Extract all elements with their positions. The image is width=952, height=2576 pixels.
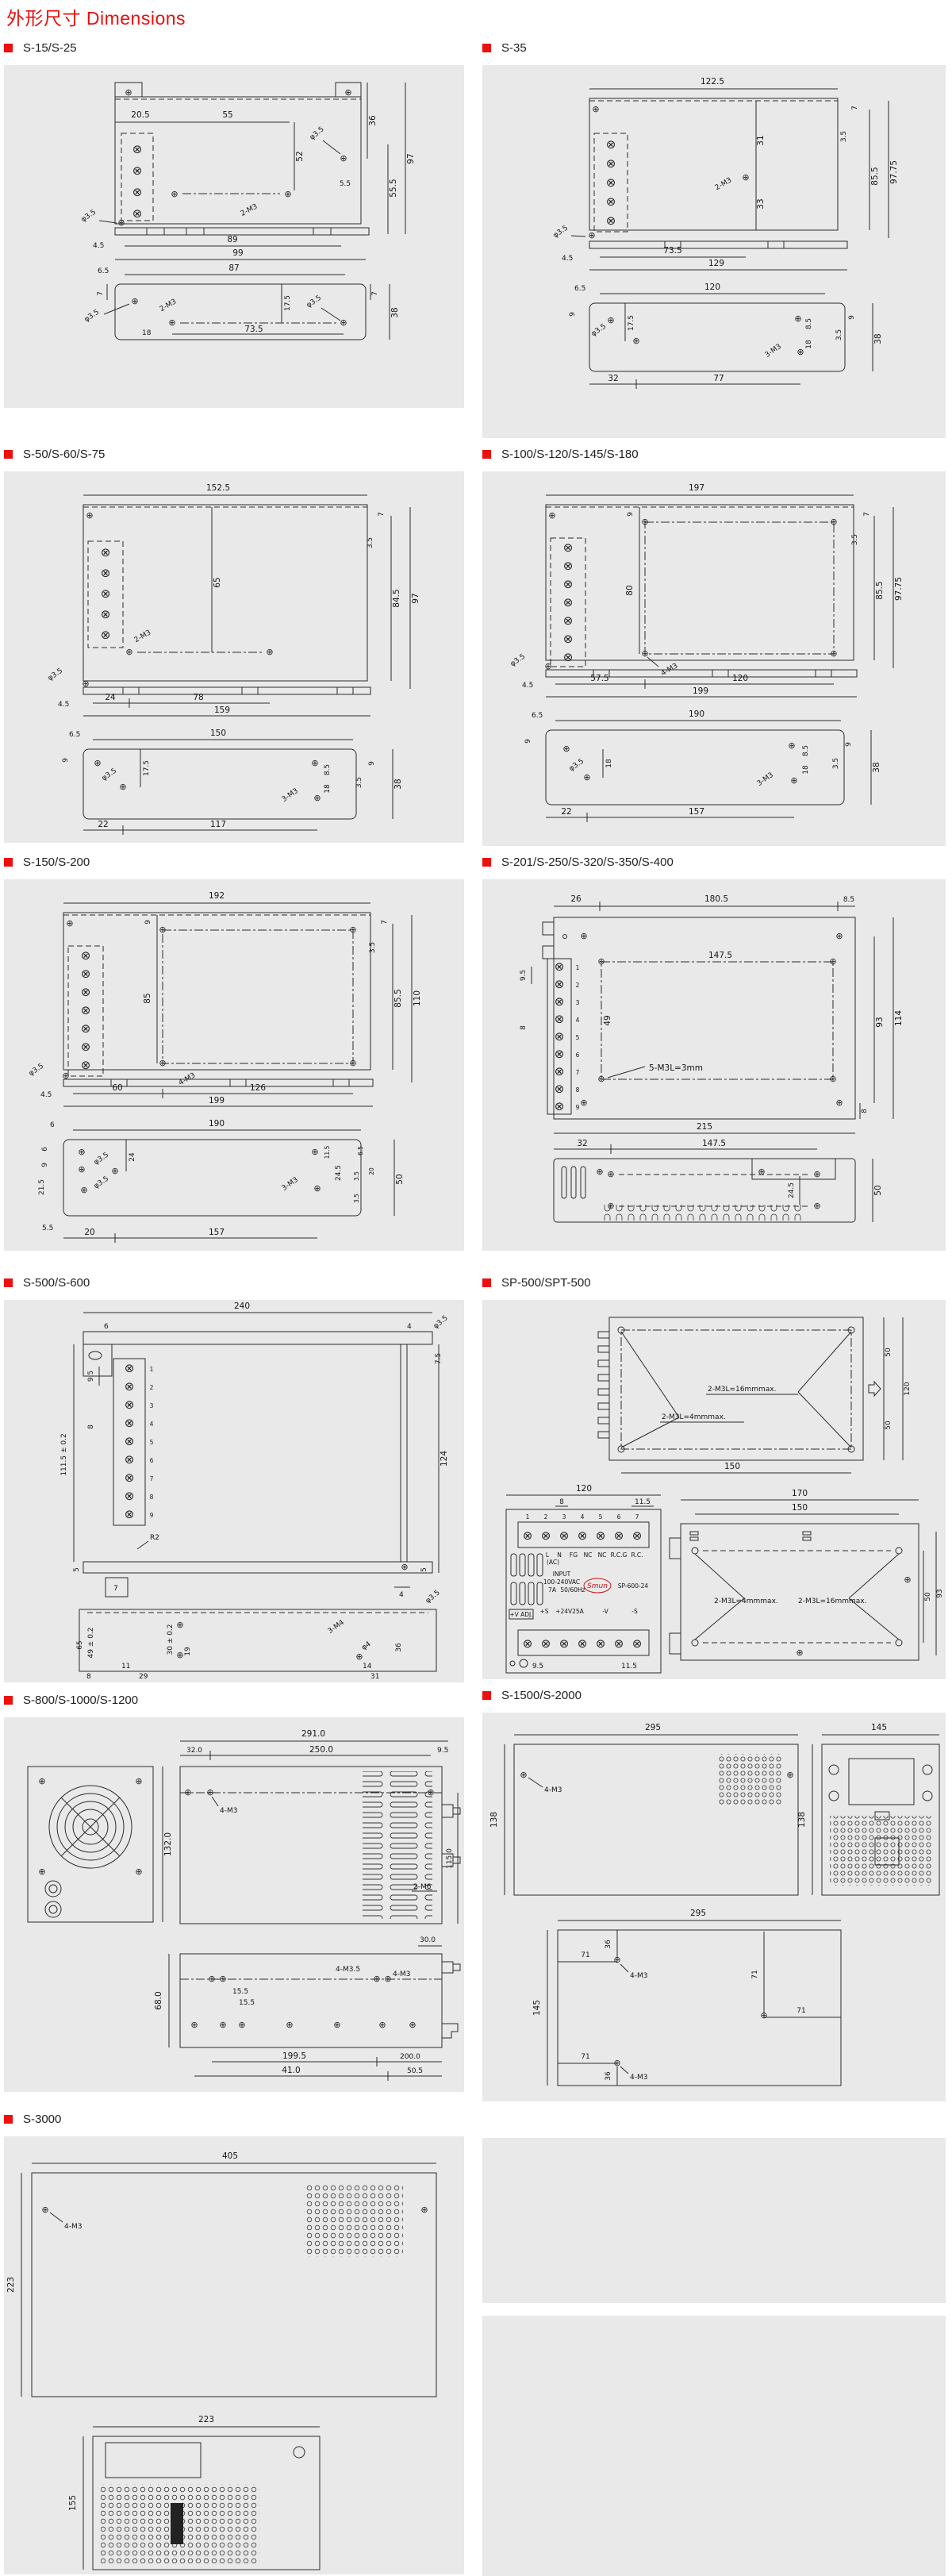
terminal-icon: ⊗: [555, 1064, 565, 1078]
dim-label: 190: [689, 709, 704, 719]
screw-icon: ⊕: [580, 931, 587, 941]
section-s3000: S-3000 405 ⊕ ⊕ 4-M3 223 22: [4, 2111, 464, 2574]
dim-label: 97.75: [889, 160, 899, 184]
section-bullet-icon: [482, 450, 491, 459]
section-s15-s25: S-15/S-25 ⊕ ⊕ ⊗ ⊗ ⊗ ⊗ ⊕ ⊕: [4, 40, 464, 408]
bottom-view: 6.5 150 9 φ3.5 ⊕ 17.5 ⊕ ⊕ ⊕ 8.5 18 3-M3 …: [62, 729, 403, 835]
dim-label: 120: [732, 674, 748, 683]
dim-label: 32.0: [186, 1747, 202, 1755]
terminal-icon: ⊗: [632, 1528, 643, 1543]
section-bullet-icon: [4, 44, 13, 52]
dim-label: 50.5: [407, 2067, 423, 2075]
section-label: S-100/S-120/S-145/S-180: [501, 448, 639, 461]
dim-label: 150: [210, 729, 226, 738]
dim-label: 36: [605, 2071, 612, 2081]
dim-label: 9: [848, 315, 856, 320]
terminal-number: 2: [544, 1513, 548, 1521]
s50-drawing: 152.5 ⊕ ⊗ ⊗ ⊗ ⊗ ⊗ 65 2-M3 ⊕ ⊕ 7: [4, 471, 464, 843]
dim-label: 60: [112, 1083, 122, 1093]
mount-hole-icon: ⊕: [742, 172, 749, 183]
dim-label: 20: [84, 1228, 94, 1237]
dim-label: 85.5: [393, 989, 403, 1007]
dim-label: 3.5: [835, 329, 843, 340]
terminal-icon: ⊗: [101, 545, 111, 559]
dim-label: 9: [144, 920, 152, 925]
screw-icon: ⊕: [758, 1167, 765, 1177]
terminal-icon: ⊗: [563, 577, 574, 591]
mount-hole-icon: ⊕: [813, 1201, 820, 1211]
mount-hole-icon: ⊕: [349, 925, 356, 935]
dim-label: 17.5: [628, 315, 635, 331]
terminal-icon: ⊗: [523, 1528, 533, 1543]
drawing-panel: 405 ⊕ ⊕ 4-M3 223 223: [4, 2136, 464, 2574]
terminal-number: 3: [562, 1513, 566, 1521]
screw-icon: ⊕: [580, 1098, 587, 1108]
dim-label: 199: [209, 1096, 225, 1105]
top-view: 240 6 4 φ3.5 7.5 ⊗ ⊗ ⊗ ⊗ ⊗ ⊗ ⊗ ⊗: [60, 1301, 450, 1605]
pin-label: R.C.: [631, 1551, 643, 1559]
dim-label: 4-M3: [544, 1786, 562, 1794]
dim-label: 117: [210, 820, 226, 829]
dim-label: 24: [129, 1152, 136, 1162]
dim-label: 4.5: [58, 701, 69, 709]
front-text: INPUT: [553, 1571, 571, 1578]
dim-label: 30 ± 0.2: [167, 1624, 175, 1655]
dim-label: 3-M3: [756, 771, 775, 788]
dim-label: 2-M3: [159, 298, 178, 313]
dim-label: 19: [184, 1647, 192, 1656]
terminal-icon: ⊗: [596, 1636, 606, 1651]
dim-label: φ3.5: [432, 1314, 450, 1331]
drawing-panel: 197 ⊕ ⊗ ⊗ ⊗ ⊗ ⊗ ⊗ ⊗ 9 ⊕ ⊕: [482, 471, 946, 846]
dim-label: 215: [697, 1122, 712, 1132]
dim-label: 9: [845, 742, 853, 747]
dim-label: 250.0: [309, 1745, 333, 1755]
terminal-icon: ⊗: [523, 1636, 533, 1651]
mount-hole-icon: ⊕: [830, 648, 837, 659]
screw-icon: ⊕: [86, 510, 93, 521]
brand-logo: Smun: [587, 1582, 608, 1590]
dim-label: 9: [627, 512, 635, 517]
dim-label: 73.5: [663, 246, 681, 256]
dim-label: φ3.5: [424, 1589, 442, 1605]
dim-label: 8.5: [802, 745, 810, 756]
mount-hole-icon: ⊕: [176, 1650, 183, 1660]
dim-label: 138: [797, 1812, 807, 1828]
mount-hole-icon: ⊕: [829, 1074, 836, 1084]
mount-hole-icon: ⊕: [829, 956, 836, 967]
dim-label: 4-M3.5: [336, 1966, 360, 1974]
mount-hole-icon: ⊕: [206, 1787, 213, 1797]
dim-label: 5.5: [42, 1225, 53, 1232]
terminal-icon: ⊗: [541, 1636, 551, 1651]
dim-label: 85.5: [875, 581, 885, 599]
mount-hole-icon: ⊕: [171, 189, 178, 199]
empty-panel: [482, 2138, 946, 2303]
dim-label: φ3.5: [93, 1175, 110, 1190]
mount-hole-icon: ⊕: [78, 1147, 85, 1157]
mount-hole-icon: ⊕: [41, 2205, 48, 2215]
section-label: S-50/S-60/S-75: [23, 448, 105, 461]
dim-label: 14: [363, 1663, 372, 1671]
dim-label: 97: [411, 593, 420, 603]
bottom-view: 6 190 6 9 21.5 ⊕ ⊕ ⊕ φ3.5 φ3.5 ⊕ 24 ⊕: [38, 1119, 405, 1243]
pin-label: R.C.G: [611, 1551, 628, 1559]
dim-label: 49 ± 0.2: [87, 1627, 95, 1658]
dim-label: 4-M3: [64, 2223, 82, 2231]
dim-label: 38: [393, 779, 403, 789]
dim-label: 145: [532, 2000, 542, 2016]
dim-label: 99: [232, 248, 243, 258]
mount-hole-icon: ⊕: [238, 2020, 245, 2030]
dim-label: 4-M3: [220, 1807, 237, 1815]
terminal-icon: ⊗: [541, 1528, 551, 1543]
mount-hole-icon: ⊕: [284, 189, 291, 199]
dim-label: 6: [104, 1323, 109, 1331]
side-view: 170 150 2-M3L=4mmmax. 2-M3L=16mmmax. ⊕ ⊕: [670, 1489, 944, 1660]
mount-hole-icon: ⊕: [190, 2020, 198, 2030]
section-bullet-icon: [482, 1691, 491, 1700]
terminal-icon: ⊗: [125, 1489, 135, 1503]
dim-label: 190: [209, 1119, 225, 1128]
bottom-view: 32 147.5 ⊕ ⊕ ⊕ ⊕ ⊕ ⊕ 24.5: [554, 1139, 883, 1222]
top-view: 405 ⊕ ⊕ 4-M3 223: [6, 2151, 436, 2397]
dim-label: 33: [756, 198, 766, 209]
mount-hole-icon: ⊕: [613, 1955, 620, 1965]
dim-label: 4: [407, 1323, 412, 1331]
dim-label: 2-M3L=16mmmax.: [798, 1598, 866, 1605]
terminal-number: 3: [150, 1402, 154, 1409]
dim-label: 295: [690, 1909, 706, 1918]
top-view: 26 180.5 8.5 ⊕ ⊕ ⊕ ⊕ ⊕ ⊕ ⊕ ⊕ 147.5: [520, 894, 904, 1133]
screw-icon: ⊕: [135, 1776, 142, 1786]
s15-drawing: ⊕ ⊕ ⊗ ⊗ ⊗ ⊗ ⊕ ⊕ 20.5 55 52: [4, 65, 464, 408]
mount-hole-icon: ⊕: [168, 317, 175, 328]
section-s35: S-35 122.5 ⊕ ⊗ ⊗ ⊗ ⊗ ⊗ 7 3.5: [482, 40, 946, 438]
dim-label: 18: [802, 765, 810, 775]
terminal-icon: ⊗: [101, 566, 111, 580]
screw-icon: ⊕: [125, 87, 132, 98]
dim-label: 20.5: [131, 110, 149, 120]
terminal-number: 4: [150, 1421, 154, 1428]
model-label: SP-600-24: [618, 1582, 649, 1590]
terminal-number: 2: [576, 982, 580, 989]
dim-label: 38: [873, 333, 883, 344]
terminal-icon: ⊗: [132, 185, 143, 199]
terminal-number: 6: [150, 1457, 154, 1464]
dim-label: 31: [370, 1673, 379, 1681]
section-bullet-icon: [482, 44, 491, 52]
terminal-icon: ⊗: [578, 1636, 588, 1651]
terminal-icon: ⊗: [563, 595, 574, 609]
dim-label: 5-M3L=3mm: [649, 1063, 703, 1073]
screw-icon: ⊕: [835, 1098, 843, 1108]
dim-label: 6.5: [574, 285, 585, 293]
dim-label: 9: [524, 739, 532, 744]
mount-hole-icon: ⊕: [333, 2020, 340, 2030]
terminal-icon: ⊗: [555, 977, 565, 991]
dim-label: 4.5: [40, 1091, 52, 1099]
dim-label: 155: [68, 2495, 78, 2511]
dim-label: 22: [98, 820, 108, 829]
terminal-icon: ⊗: [125, 1434, 135, 1448]
top-view: 152.5 ⊕ ⊗ ⊗ ⊗ ⊗ ⊗ 65 2-M3 ⊕ ⊕ 7: [47, 483, 420, 716]
dim-label: 7: [371, 291, 379, 296]
front-text: -V: [602, 1608, 608, 1615]
terminal-icon: ⊗: [555, 959, 565, 974]
screw-icon: ⊕: [344, 87, 351, 98]
mount-hole-icon: ⊕: [401, 1562, 408, 1572]
terminal-icon: ⊗: [559, 1528, 570, 1543]
mount-hole-icon: ⊕: [208, 1974, 215, 1984]
drawing-panel: 2-M3L=16mmmax. 2-M3L=4mmmax. 50 120 50 1…: [482, 1300, 946, 1679]
front-view: 120 8 11.5 1 2 3 4 5 6 7 ⊗ ⊗ ⊗: [506, 1484, 661, 1673]
dim-label: 9: [569, 312, 577, 317]
dim-label: 157: [689, 807, 704, 817]
dim-label: 49: [603, 1015, 612, 1025]
section-s100-s180: S-100/S-120/S-145/S-180 197 ⊕ ⊗ ⊗ ⊗ ⊗ ⊗ …: [482, 446, 946, 846]
dim-label: 8: [520, 1025, 528, 1030]
dim-label: 3.5: [840, 131, 848, 142]
dim-label: 9: [41, 1163, 49, 1167]
dim-label: 6: [50, 1121, 55, 1129]
pin-label: NC: [598, 1551, 607, 1559]
dim-label: 3-M3: [764, 343, 783, 359]
screw-icon: ⊕: [904, 1574, 911, 1585]
terminal-icon: ⊗: [563, 559, 574, 573]
bottom-view: 49 ± 0.2 65 30 ± 0.2 19 ⊕ ⊕ 3-M4 φ4 ⊕ 36…: [76, 1609, 436, 1681]
dim-label: 8: [86, 1673, 91, 1681]
dim-label: 3.5: [353, 1171, 360, 1181]
dim-label: 50: [395, 1174, 405, 1184]
s201-drawing: 26 180.5 8.5 ⊕ ⊕ ⊕ ⊕ ⊕ ⊕ ⊕ ⊕ 147.5: [482, 879, 946, 1251]
dim-label: 18: [324, 784, 332, 794]
drawing-panel: 295 ⊕ ⊕ 4-M3 138 145: [482, 1713, 946, 2101]
top-view: ⊕ ⊕ ⊗ ⊗ ⊗ ⊗ ⊕ ⊕ 20.5 55 52: [80, 83, 416, 260]
terminal-icon: ⊗: [614, 1636, 624, 1651]
section-label: S-3000: [23, 2113, 61, 2126]
mount-hole-icon: ⊕: [632, 336, 639, 346]
dim-label: 240: [234, 1301, 250, 1311]
dim-label: 159: [214, 706, 230, 715]
terminal-icon: ⊗: [563, 613, 574, 628]
dim-label: 9.5: [532, 1663, 543, 1671]
terminal-number: 6: [576, 1052, 580, 1059]
dim-label: 17.5: [284, 295, 292, 311]
dim-label: 2-M3L=4mmmax.: [662, 1413, 726, 1421]
terminal-number: 4: [576, 1017, 580, 1024]
dim-label: 4.5: [522, 682, 533, 690]
terminal-icon: ⊗: [125, 1452, 135, 1467]
dim-label: φ3.5: [83, 308, 101, 324]
s500-drawing: 240 6 4 φ3.5 7.5 ⊗ ⊗ ⊗ ⊗ ⊗ ⊗ ⊗ ⊗: [4, 1300, 464, 1682]
mount-hole-icon: ⊕: [797, 347, 804, 357]
dim-label: 84.5: [392, 589, 401, 607]
front-text: 50/60Hz: [560, 1586, 585, 1594]
dim-label: 24: [105, 693, 116, 702]
bottom-view: 6.5 120 9 φ3.5 ⊕ 17.5 ⊕ ⊕ ⊕ 8.5 18 3-M3 …: [569, 283, 883, 389]
dim-label: 2-M3: [240, 203, 259, 218]
terminal-number: 5: [599, 1513, 603, 1521]
dim-label: 111.5 ± 0.2: [60, 1433, 68, 1475]
dim-label: 7: [378, 512, 386, 517]
terminal-icon: ⊗: [101, 628, 111, 642]
dim-label: 122.5: [701, 77, 724, 87]
dim-label: 15.5: [239, 1999, 255, 2007]
top-view: 197 ⊕ ⊗ ⊗ ⊗ ⊗ ⊗ ⊗ ⊗ 9 ⊕ ⊕: [509, 483, 904, 697]
dim-label: 120: [576, 1484, 592, 1494]
dim-label: 17.5: [143, 760, 151, 776]
dim-label: 7: [97, 291, 105, 296]
dim-label: 31: [756, 135, 766, 145]
terminal-icon: ⊗: [81, 1021, 91, 1036]
dim-label: φ3.5: [309, 125, 326, 142]
pin-label: (AC): [547, 1559, 559, 1566]
dim-label: 11.5: [635, 1498, 651, 1506]
dim-label: 8: [559, 1498, 564, 1506]
dim-label: 6.5: [69, 731, 80, 739]
terminal-icon: ⊗: [555, 1099, 565, 1113]
dim-label: 2-M3: [714, 176, 733, 192]
dim-label: 68.0: [154, 1991, 163, 2009]
sp500-drawing: 2-M3L=16mmmax. 2-M3L=4mmmax. 50 120 50 1…: [482, 1300, 946, 1679]
terminal-number: 9: [150, 1512, 154, 1519]
screw-icon: ⊕: [548, 510, 555, 521]
terminal-icon: ⊗: [125, 1398, 135, 1412]
dim-label: 4: [399, 1591, 404, 1599]
dim-label: 129: [708, 259, 724, 268]
terminal-number: 1: [526, 1513, 530, 1521]
mount-hole-icon: ⊕: [176, 1620, 183, 1630]
mount-hole-icon: ⊕: [583, 772, 590, 782]
dim-label: 9.5: [87, 1371, 95, 1382]
terminal-icon: ⊗: [555, 1012, 565, 1026]
terminal-number: 1: [576, 964, 580, 971]
section-s500-s600: S-500/S-600 240 6 4 φ3.5 7.5 ⊗ ⊗ ⊗: [4, 1275, 464, 1682]
mount-hole-icon: ⊕: [760, 2010, 767, 2020]
dim-label: 93: [936, 1589, 944, 1598]
dim-label: 6: [41, 1147, 49, 1152]
dim-label: 150: [792, 1503, 808, 1513]
mount-hole-icon: ⊕: [373, 1974, 380, 1984]
terminal-number: 5: [576, 1034, 580, 1041]
dim-label: 223: [198, 2415, 214, 2424]
top-view: 295 ⊕ ⊕ 4-M3 138: [489, 1723, 798, 1895]
section-s800-s1200: S-800/S-1000/S-1200 ⊕ ⊕ ⊕ ⊕ 132.0: [4, 1692, 464, 2092]
drawing-panel: 26 180.5 8.5 ⊕ ⊕ ⊕ ⊕ ⊕ ⊕ ⊕ ⊕ 147.5: [482, 879, 946, 1251]
dim-label: 32: [608, 374, 618, 383]
section-bullet-icon: [482, 1278, 491, 1287]
mount-hole-icon: ⊕: [131, 296, 138, 306]
front-text: -S: [631, 1608, 638, 1615]
terminal-icon: ⊗: [578, 1528, 588, 1543]
section-s201-s400: S-201/S-250/S-320/S-350/S-400 26 180.5 8…: [482, 854, 946, 1251]
terminal-number: 8: [150, 1494, 154, 1501]
dim-label: 200.0: [400, 2053, 420, 2061]
dim-label: 223: [6, 2277, 16, 2293]
dim-label: φ3.5: [590, 322, 608, 338]
bottom-view: 30.0 68.0 ⊕ ⊕ ⊕ ⊕ ⊕ ⊕ ⊕ ⊕ ⊕ ⊕ ⊕ 15.5: [154, 1936, 460, 2081]
bottom-view: 6.5 87 7 ⊕ φ3.5 2-M3 ⊕ 18 17.5 73: [83, 263, 400, 340]
dim-label: 85.5: [870, 167, 880, 185]
dim-label: 18: [142, 329, 152, 337]
dim-label: 11.5: [621, 1663, 637, 1671]
drawing-panel: 122.5 ⊕ ⊗ ⊗ ⊗ ⊗ ⊗ 7 3.5 31 2-M3 ⊕: [482, 65, 946, 438]
mount-hole-icon: ⊕: [311, 1147, 318, 1157]
dim-label: 8.5: [324, 764, 332, 775]
dim-label: 5.5: [340, 180, 351, 188]
dim-label: 197: [689, 483, 704, 493]
terminal-icon: ⊗: [132, 142, 143, 156]
mount-hole-icon: ⊕: [520, 1770, 527, 1780]
dim-label: φ3.5: [28, 1062, 45, 1078]
mount-hole-icon: ⊕: [313, 793, 321, 803]
dim-label: 15.5: [232, 1988, 248, 1996]
dim-label: 4-M3: [393, 1970, 410, 1978]
mount-hole-icon: ⊕: [813, 1169, 820, 1179]
terminal-icon: ⊗: [101, 607, 111, 621]
bottom-view: 295 36 ⊕ 71 4-M3 145 71 ⊕ 71: [532, 1909, 841, 2086]
s3000-drawing: 405 ⊕ ⊕ 4-M3 223 223: [4, 2136, 464, 2574]
dim-label: 138: [489, 1812, 499, 1828]
drawing-panel: 192 ⊕ ⊗ ⊗ ⊗ ⊗ ⊗ ⊗ ⊗ 9 ⊕ ⊕: [4, 879, 464, 1251]
mount-hole-icon: ⊕: [794, 313, 801, 324]
dim-label: 7: [863, 512, 871, 517]
terminal-icon: ⊗: [81, 948, 91, 963]
pin-label: FG: [570, 1551, 578, 1559]
dim-label: φ3.5: [552, 224, 570, 240]
dim-label: 7: [381, 920, 389, 925]
section-s1500-s2000: S-1500/S-2000 295 ⊕ ⊕ 4-M3 138: [482, 1687, 946, 2101]
dim-label: 147.5: [708, 951, 732, 960]
dim-label: 71: [797, 2007, 805, 2015]
mount-hole-icon: ⊕: [790, 775, 797, 786]
dim-label: φ3.5: [93, 1151, 110, 1167]
dim-label: 2-M3L=16mmmax.: [708, 1386, 776, 1394]
screw-icon: ⊕: [596, 1167, 603, 1177]
dim-label: 291.0: [301, 1729, 325, 1739]
terminal-number: 2: [150, 1384, 154, 1391]
section-bullet-icon: [4, 858, 13, 867]
mount-hole-icon: ⊕: [159, 1058, 166, 1068]
section-s50-s60-s75: S-50/S-60/S-75 152.5 ⊕ ⊗ ⊗ ⊗ ⊗ ⊗ 65: [4, 446, 464, 843]
terminal-icon: ⊗: [81, 1040, 91, 1054]
dim-label: 89: [227, 235, 237, 244]
dim-label: 4.5: [93, 242, 104, 250]
mount-hole-icon: ⊕: [340, 153, 347, 163]
mount-hole-icon: ⊕: [349, 1058, 356, 1068]
dim-label: 22: [561, 807, 571, 817]
dim-label: 30.0: [420, 1936, 436, 1944]
dim-label: 7: [851, 106, 859, 110]
dim-label: 93: [875, 1017, 885, 1027]
dim-label: 150: [724, 1462, 740, 1471]
screw-icon: ⊕: [835, 931, 843, 941]
dim-label: 5: [73, 1567, 81, 1572]
screw-icon: ⊕: [38, 1776, 45, 1786]
pin-label: L: [546, 1551, 550, 1559]
dim-label: 21.5: [38, 1179, 46, 1195]
terminal-number: 8: [576, 1086, 580, 1094]
terminal-icon: ⊗: [606, 156, 616, 171]
terminal-icon: ⊗: [555, 1029, 565, 1044]
terminal-number: 7: [635, 1513, 639, 1521]
dim-label: 18: [805, 340, 813, 349]
dim-label: 180.5: [704, 894, 728, 904]
screw-icon: ⊕: [592, 104, 599, 114]
dim-label: 24.5: [335, 1165, 343, 1181]
dim-label: φ3.5: [509, 652, 527, 668]
